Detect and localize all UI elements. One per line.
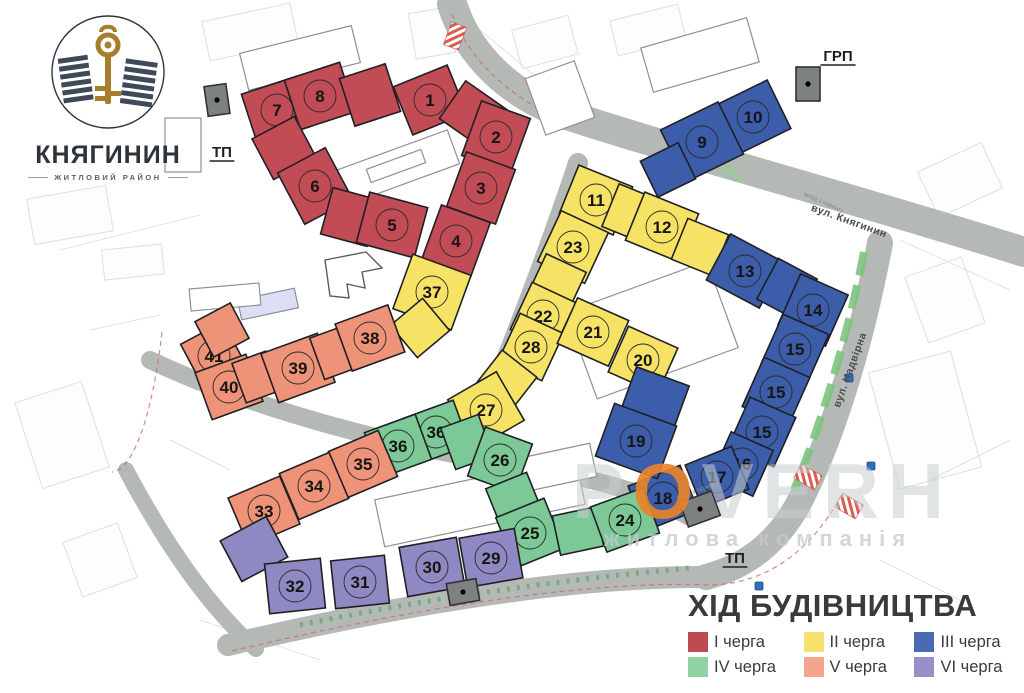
- legend-item-5: V черга: [804, 657, 903, 677]
- unit-number: 4: [451, 232, 461, 251]
- legend-label: II черга: [830, 633, 886, 652]
- unit-number: 12: [653, 218, 672, 237]
- unit-number: 34: [305, 477, 324, 496]
- unit-number: 37: [423, 283, 442, 302]
- road-sign: [867, 462, 875, 470]
- unit-number: 36: [389, 437, 408, 456]
- utility-station-box: [796, 67, 820, 101]
- unit-number: 39: [289, 359, 308, 378]
- station-label: ГРП: [823, 48, 852, 65]
- utility-station-box: [204, 84, 230, 117]
- legend-swatch: [914, 632, 934, 652]
- logo-subtitle: ЖИТЛОВИЙ РАЙОН: [28, 173, 188, 182]
- legend-label: IV черга: [714, 658, 776, 677]
- legend-swatch: [804, 632, 824, 652]
- unit-number: 26: [491, 451, 510, 470]
- unit-number: 23: [564, 238, 583, 257]
- legend-swatch: [688, 657, 708, 677]
- legend-item-1: I черга: [688, 632, 792, 652]
- unit-number: 3: [476, 179, 485, 198]
- unit-number: 38: [361, 329, 380, 348]
- building-units: 7812346537111223222821202710913141515151…: [181, 62, 849, 613]
- unit-number: 35: [354, 455, 373, 474]
- unit-number: 24: [616, 511, 635, 530]
- courtyard-building: [325, 252, 382, 298]
- unit-number: 31: [351, 573, 370, 592]
- legend-item-2: II черга: [804, 632, 903, 652]
- unit-number: 14: [804, 301, 823, 320]
- building-unit-32: 32: [265, 558, 326, 614]
- background-parcel: [918, 143, 1003, 218]
- background-parcel: [27, 185, 114, 244]
- legend-label: V черга: [830, 658, 887, 677]
- unit-number: 9: [697, 133, 706, 152]
- unit-number: 40: [220, 378, 239, 397]
- legend-swatch: [804, 657, 824, 677]
- unit-number: 6: [310, 177, 319, 196]
- background-parcel: [512, 15, 578, 69]
- developer-logo: КНЯГИНИН ЖИТЛОВИЙ РАЙОН: [28, 12, 188, 182]
- unit-number: 8: [315, 87, 324, 106]
- unit-number: 28: [522, 338, 541, 357]
- logo-emblem: [46, 12, 170, 134]
- cadastral-line: [90, 315, 160, 330]
- unit-number: 21: [584, 323, 603, 342]
- cadastral-line: [170, 440, 230, 470]
- unit-number: 5: [387, 216, 396, 235]
- phase-legend: I чергаII чергаIII чергаIV чергаV чергаV…: [688, 632, 1018, 677]
- legend-swatch: [914, 657, 934, 677]
- background-parcel: [63, 523, 137, 597]
- legend-label: III черга: [940, 633, 1000, 652]
- background-parcel: [102, 244, 165, 280]
- panel-title: ХІД БУДІВНИЦТВА: [688, 588, 1018, 624]
- background-parcel: [868, 351, 981, 489]
- legend-item-3: III черга: [914, 632, 1018, 652]
- unit-number: 15: [753, 423, 772, 442]
- building-unit-5: 5: [356, 192, 427, 258]
- legend-item-6: VI черга: [914, 657, 1018, 677]
- legend-item-4: IV черга: [688, 657, 792, 677]
- background-parcel: [15, 381, 109, 488]
- legend-label: VI черга: [940, 658, 1002, 677]
- legend-label: I черга: [714, 633, 765, 652]
- unit-number: 15: [786, 340, 805, 359]
- utility-station-box: [446, 579, 479, 606]
- unit-number: 15: [767, 383, 786, 402]
- building-unit-31: 31: [331, 555, 390, 608]
- building-unit-29: 29: [459, 529, 523, 588]
- unit-number: 13: [736, 262, 755, 281]
- unit-number: 10: [744, 108, 763, 127]
- legend-swatch: [688, 632, 708, 652]
- unit-number: 19: [627, 432, 646, 451]
- building-footprint: [339, 64, 400, 126]
- unit-number: 32: [286, 577, 305, 596]
- unit-number: 2: [491, 128, 500, 147]
- unit-number: 29: [482, 549, 501, 568]
- background-parcel: [905, 257, 985, 343]
- unit-number: 18: [654, 489, 673, 508]
- unit-number: 25: [521, 524, 540, 543]
- unit-number: 30: [423, 558, 442, 577]
- station-label: ТП: [212, 144, 232, 161]
- station-label: ТП: [725, 550, 745, 567]
- logo-wordmark: КНЯГИНИН: [28, 141, 188, 170]
- unit-number: 7: [272, 101, 281, 120]
- site-plan-canvas: 7812346537111223222821202710913141515151…: [0, 0, 1024, 693]
- building-unit-segment: [339, 64, 400, 126]
- unit-number: 11: [587, 191, 605, 210]
- unit-number: 1: [425, 91, 434, 110]
- construction-progress-panel: ХІД БУДІВНИЦТВА I чергаII чергаIII черга…: [688, 588, 1018, 677]
- crosswalk-hatch: [835, 493, 864, 519]
